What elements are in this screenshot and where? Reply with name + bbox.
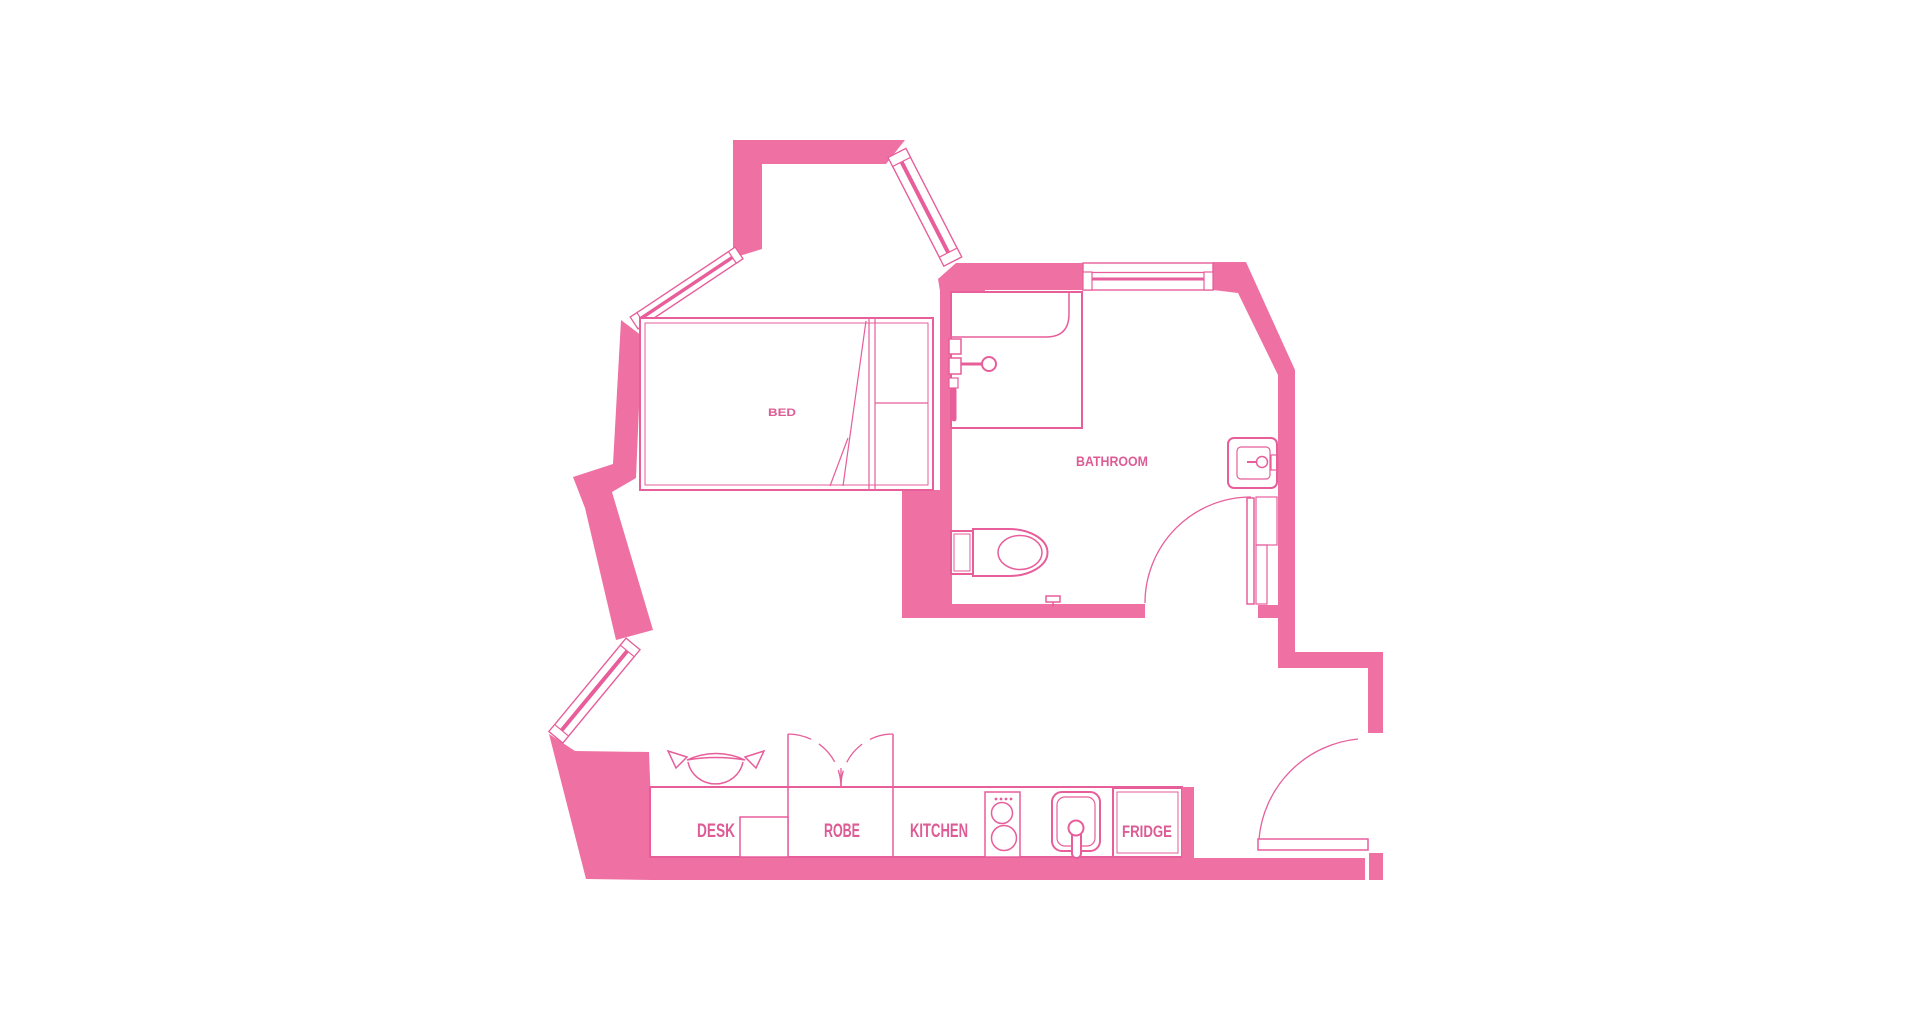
desk-pedestal xyxy=(740,817,788,857)
toilet-icon xyxy=(951,529,1048,576)
shower xyxy=(949,292,1082,428)
holder-plate xyxy=(1046,596,1060,602)
chair-arm-right xyxy=(745,751,764,768)
cooktop-outline xyxy=(985,792,1020,857)
bathroom-door xyxy=(1145,497,1277,604)
room-label-bathroom: BATHROOM xyxy=(1076,453,1148,469)
cooktop-icon xyxy=(985,792,1020,857)
shower-enclosure xyxy=(951,292,1082,428)
cooktop-knob xyxy=(1010,798,1013,801)
cooktop-knob xyxy=(995,798,998,801)
entry-jamb-seam xyxy=(1365,858,1369,880)
wall-bathroom-bottom xyxy=(902,604,1145,618)
bed-outline xyxy=(640,318,933,490)
shower-bracket xyxy=(949,378,958,388)
window-glass-line xyxy=(899,157,950,257)
bathroom-shelf xyxy=(1256,497,1277,545)
cooktop-knob xyxy=(1000,798,1003,801)
window-top-diagonal xyxy=(888,148,962,266)
floor-plan-page: BED xyxy=(0,0,1920,1020)
desk-chair-icon xyxy=(668,751,764,784)
bathroom-door-arc xyxy=(1145,497,1251,603)
entry-door xyxy=(1258,739,1368,850)
floor-plan-svg: BED xyxy=(0,0,1920,1020)
window-upper-left xyxy=(630,247,743,329)
wall-bottom-right-step xyxy=(1369,853,1383,859)
bedroom: BED xyxy=(640,318,933,490)
wall-bottom xyxy=(650,858,1383,880)
basin xyxy=(1228,438,1278,488)
shower-valve-2 xyxy=(949,358,961,374)
window-glass-line xyxy=(638,255,736,320)
room-label-fridge: FRIDGE xyxy=(1122,822,1172,841)
exterior-walls xyxy=(549,140,1383,880)
sink-icon xyxy=(1052,792,1100,858)
room-label-kitchen: KITCHEN xyxy=(910,821,968,842)
robe-doors xyxy=(788,734,893,787)
bathroom: BATHROOM xyxy=(949,292,1278,607)
entry-door-arc xyxy=(1259,739,1358,839)
window-frame xyxy=(1083,263,1213,290)
robe-door-right-arc xyxy=(841,734,893,786)
cooktop-knob xyxy=(1005,798,1008,801)
wall-bathroom-top xyxy=(956,263,1083,290)
sink-tap-head xyxy=(1069,821,1084,836)
chair-back xyxy=(687,754,745,761)
entry-door-leaf xyxy=(1258,839,1368,850)
robe-door-left-arc xyxy=(788,734,841,787)
window-end-cap xyxy=(1204,272,1213,290)
kitchen-strip: DESK ROBE KITCHEN xyxy=(650,734,1194,858)
window-glass-line xyxy=(559,648,630,734)
wall-bottom-left-wedge xyxy=(549,734,653,880)
shower-head-icon xyxy=(982,357,996,371)
room-label-desk: DESK xyxy=(697,821,735,842)
chair-arm-left xyxy=(668,751,687,768)
shower-valve xyxy=(949,339,961,354)
wall-top xyxy=(733,140,905,258)
counter-end-wall-block xyxy=(1182,787,1194,858)
bathroom-shelf-2 xyxy=(1256,545,1267,604)
chair-seat xyxy=(688,762,743,784)
shower-tray-curve xyxy=(951,292,1069,337)
window-end-cap xyxy=(1083,272,1092,290)
window-lower-left xyxy=(549,638,640,743)
basin-tap-icon xyxy=(1257,457,1268,468)
wall-divider-lower xyxy=(902,490,952,618)
room-label-robe: ROBE xyxy=(824,821,860,842)
bathroom-door-leaf xyxy=(1247,498,1254,604)
window-bathroom-top xyxy=(1083,263,1213,290)
room-label-bed: BED xyxy=(768,407,796,419)
fridge: FRIDGE xyxy=(1113,788,1182,857)
toilet-bowl xyxy=(973,529,1048,576)
wall-bathroom-door-hinge-block xyxy=(1258,605,1278,618)
